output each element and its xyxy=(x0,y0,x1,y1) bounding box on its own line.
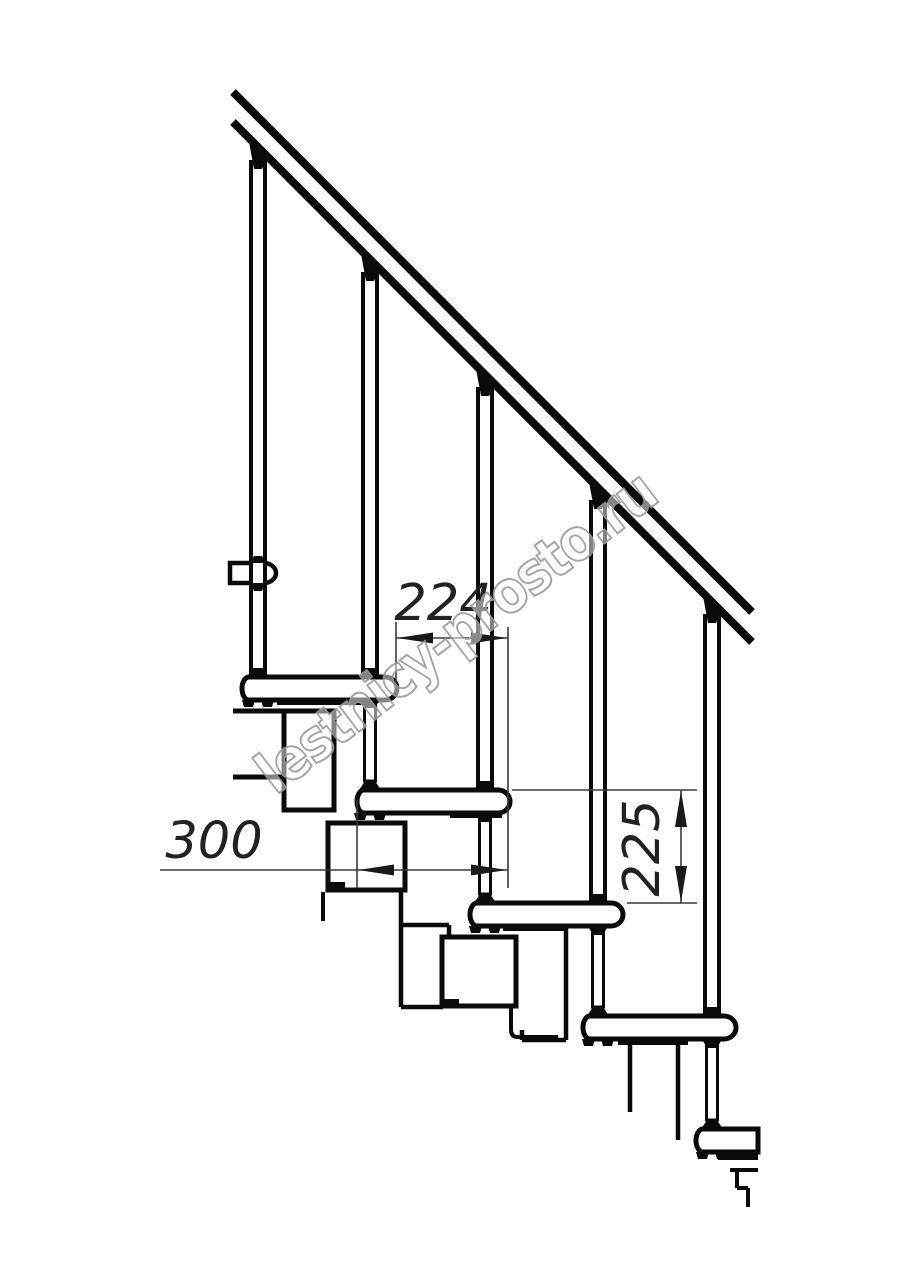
baluster-2 xyxy=(363,274,377,677)
module-box-2 xyxy=(328,823,405,890)
tread-shadow xyxy=(718,1151,758,1160)
staircase-drawing-page: 224 300 225 lestnicy-prosto.ru xyxy=(0,0,914,1280)
bolt-flange xyxy=(474,894,496,903)
tread-shadow xyxy=(503,925,566,931)
dimension-value-depth: 300 xyxy=(165,812,262,871)
staircase-elevation-drawing: 224 300 225 lestnicy-prosto.ru xyxy=(0,0,914,1280)
module-shadow xyxy=(443,999,459,1005)
tread-3 xyxy=(470,903,623,926)
nut xyxy=(601,1039,614,1046)
nut xyxy=(373,813,386,820)
baluster-1 xyxy=(251,162,265,677)
module-cut-line-bottom xyxy=(730,1170,758,1207)
nut xyxy=(582,1039,595,1046)
tread-4 xyxy=(583,1016,736,1039)
bolt-flange xyxy=(359,781,381,790)
bolt xyxy=(707,1040,718,1120)
bolt-flange xyxy=(701,1120,723,1129)
bolt xyxy=(593,927,604,1007)
dimension-value-rise: 225 xyxy=(613,799,672,896)
baluster-5 xyxy=(705,616,719,1016)
module-cut-line xyxy=(511,1006,558,1037)
nut xyxy=(242,700,255,707)
nut xyxy=(354,813,367,820)
bolt-flange xyxy=(587,1007,609,1016)
module-bracket-b xyxy=(522,928,566,1040)
arrow-down xyxy=(675,866,687,902)
module-lines-4 xyxy=(630,1042,678,1140)
tread-2 xyxy=(357,790,510,813)
tread-shadow xyxy=(618,1038,688,1045)
bolt xyxy=(480,814,491,894)
nut xyxy=(488,926,501,933)
module-box-3 xyxy=(442,937,516,1006)
nut xyxy=(261,700,274,707)
tread-5 xyxy=(696,1129,758,1152)
arrow-up xyxy=(675,791,687,827)
module-shadow xyxy=(329,882,345,888)
nut xyxy=(696,1152,709,1159)
nut xyxy=(469,926,482,933)
